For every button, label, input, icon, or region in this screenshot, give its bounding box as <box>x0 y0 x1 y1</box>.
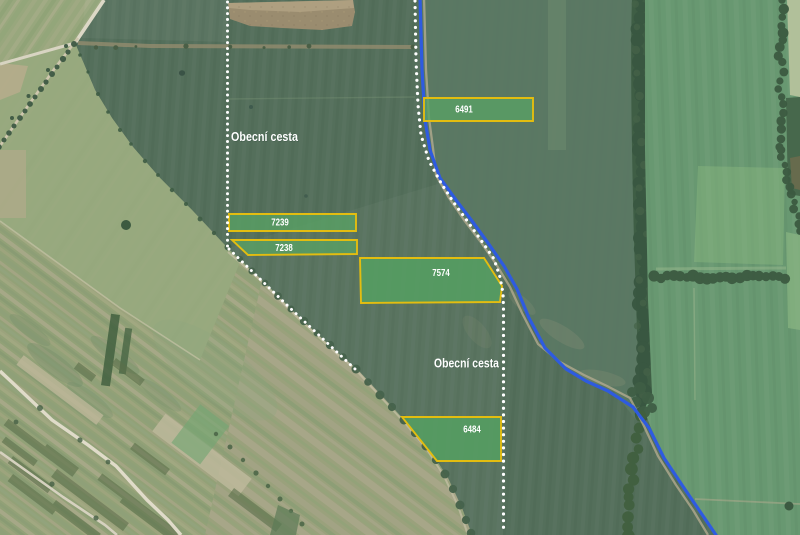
svg-text:6484: 6484 <box>463 425 481 436</box>
svg-text:7238: 7238 <box>275 243 293 254</box>
svg-text:7239: 7239 <box>271 218 289 229</box>
svg-text:6491: 6491 <box>455 105 473 116</box>
svg-text:7574: 7574 <box>432 268 450 279</box>
svg-text:Obecní cesta: Obecní cesta <box>434 356 500 371</box>
svg-text:Obecní cesta: Obecní cesta <box>231 129 299 144</box>
